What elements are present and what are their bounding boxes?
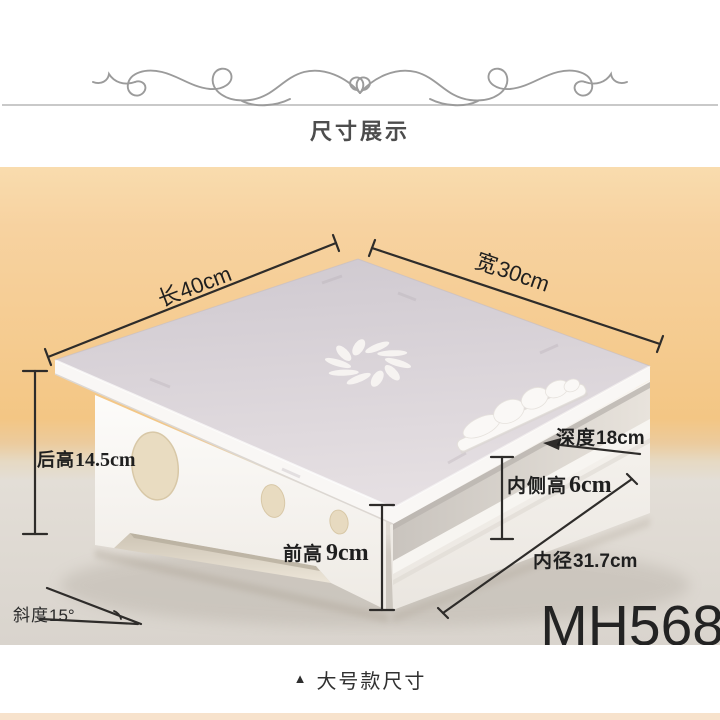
dim-slope-label: 斜度	[13, 601, 49, 626]
product-illustration	[0, 167, 720, 645]
dim-front-height-value: 9cm	[326, 540, 369, 567]
dim-slope: 斜度 15°	[13, 601, 75, 626]
page: 尺寸展示	[0, 0, 720, 720]
dim-inner-height-label: 内侧高	[507, 471, 567, 498]
dim-inner-height: 内侧高 6cm	[507, 471, 612, 499]
dim-back-height: 后高 14.5cm	[37, 446, 136, 472]
dim-slope-value: 15°	[49, 606, 75, 626]
dim-depth-label: 深度	[556, 423, 596, 450]
dim-back-height-value: 14.5cm	[75, 449, 136, 472]
footer-caption: 大号款尺寸	[316, 665, 426, 694]
model-number: MH568	[540, 593, 720, 645]
dim-depth-value: 18cm	[596, 428, 645, 450]
dim-inner-diameter: 内径 31.7cm	[533, 546, 637, 573]
dim-inner-height-value: 6cm	[569, 472, 612, 499]
triangle-marker-icon: ▲	[294, 671, 307, 686]
dim-depth: 深度 18cm	[556, 423, 645, 450]
dim-back-height-label: 后高	[37, 446, 75, 472]
product-photo: 长 40cm 宽 30cm 后高 14.5cm 深度 18cm 内侧高 6cm …	[0, 167, 720, 645]
dim-front-height-label: 前高	[283, 539, 323, 566]
dim-inner-diameter-label: 内径	[533, 546, 573, 573]
flourish-ornament-icon	[0, 55, 720, 111]
dim-inner-diameter-value: 31.7cm	[573, 551, 637, 573]
header: 尺寸展示	[0, 0, 720, 167]
section-title: 尺寸展示	[0, 114, 720, 146]
bottom-strip	[0, 713, 720, 720]
dim-front-height: 前高 9cm	[283, 539, 369, 567]
footer: ▲ 大号款尺寸	[0, 645, 720, 713]
